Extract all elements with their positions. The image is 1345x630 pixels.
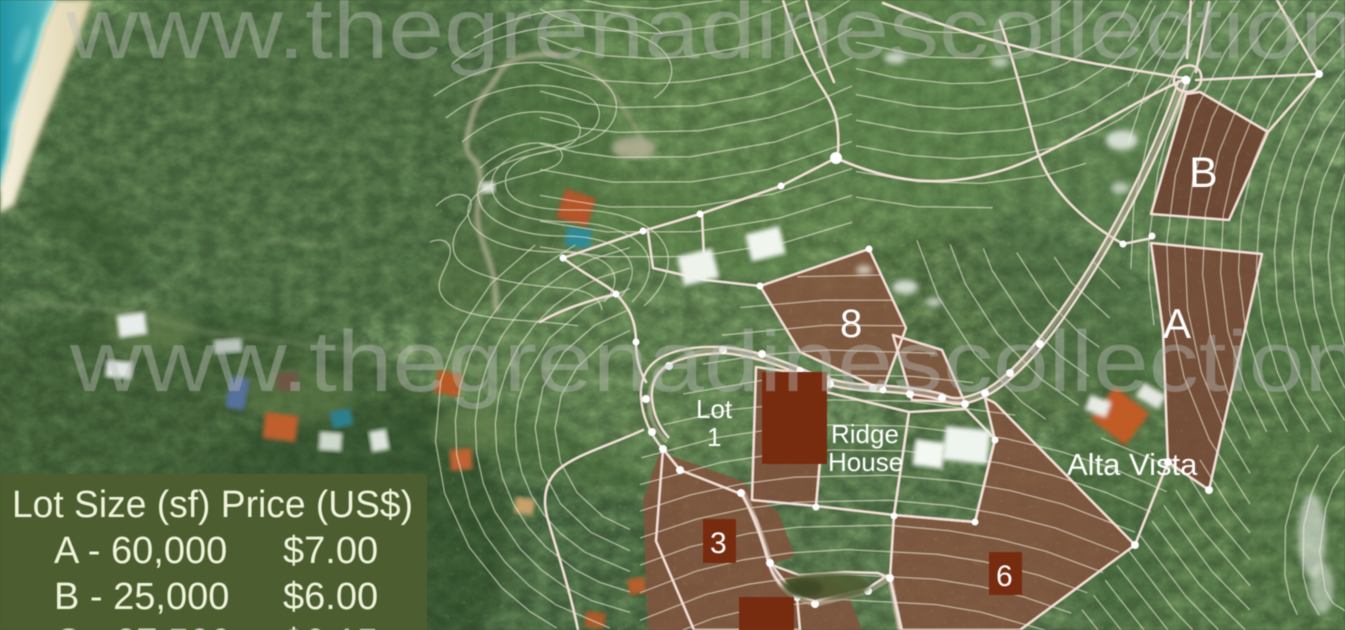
svg-text:$7.00: $7.00: [283, 530, 378, 572]
svg-text:C - 27,500: C - 27,500: [54, 622, 231, 630]
svg-text:3: 3: [710, 527, 727, 560]
svg-text:Alta Vista: Alta Vista: [1067, 447, 1198, 482]
svg-text:A - 60,000: A - 60,000: [54, 530, 227, 572]
svg-text:www.thegrenadinescollection: www.thegrenadinescollection: [65, 0, 1345, 77]
svg-text:B - 25,000: B - 25,000: [54, 576, 229, 618]
svg-text:B: B: [1189, 149, 1218, 197]
svg-text:6: 6: [996, 560, 1013, 593]
svg-text:1: 1: [707, 422, 721, 452]
svg-text:www.thegrenadinescollection: www.thegrenadinescollection: [69, 314, 1345, 410]
svg-text:House: House: [828, 447, 903, 477]
svg-text:$6.00: $6.00: [283, 576, 378, 618]
svg-text:Ridge: Ridge: [831, 419, 899, 449]
svg-text:Lot Size (sf) Price (US$): Lot Size (sf) Price (US$): [12, 484, 413, 526]
svg-text:$6.15: $6.15: [283, 622, 378, 630]
